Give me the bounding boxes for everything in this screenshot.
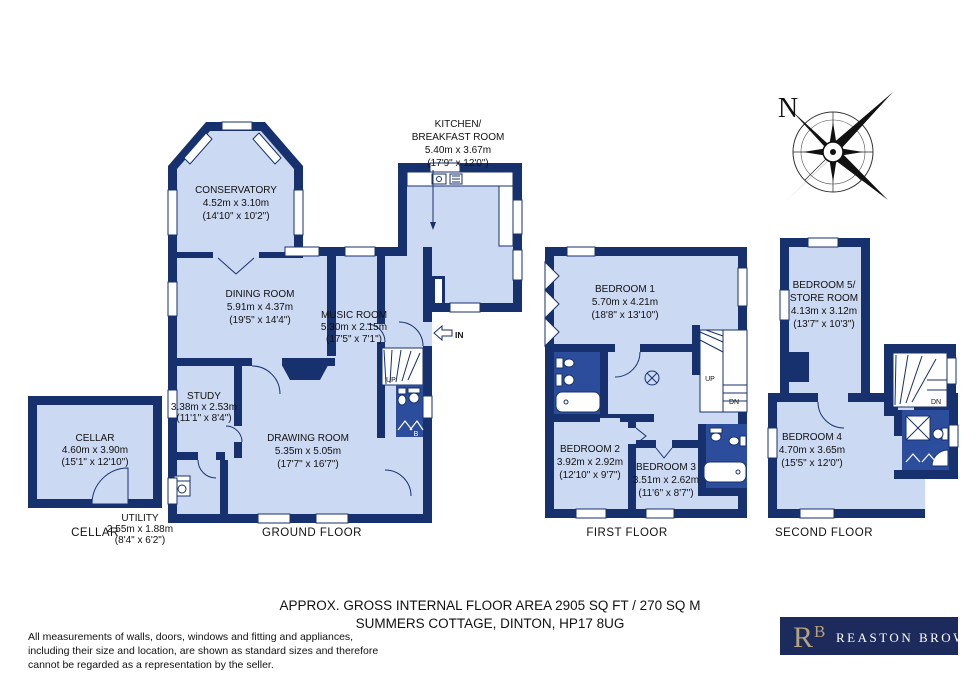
room-size-metric: 3.38m x 2.53m: [171, 402, 237, 413]
shower-room: [894, 410, 949, 470]
sink-icon: [408, 388, 420, 393]
window: [646, 509, 674, 518]
boiler-label: B: [414, 431, 419, 438]
window: [513, 200, 522, 234]
window: [800, 509, 834, 518]
window: [947, 358, 956, 384]
window: [768, 428, 777, 458]
window: [576, 509, 606, 518]
wc-room: B: [396, 385, 423, 438]
agent-logo: R B REASTON BROWN: [780, 617, 980, 655]
window: [567, 247, 595, 256]
stairs-down-label: DN: [729, 399, 739, 406]
room-name: STUDY: [187, 391, 221, 402]
entrance-in-arrow: IN: [434, 326, 464, 340]
room-name: DRAWING ROOM: [267, 433, 349, 444]
room-size-metric: 3.92m x 2.92m: [557, 457, 623, 468]
window: [316, 514, 348, 523]
kitchen-sink-icon: [432, 174, 446, 184]
room-size-imperial: (19'5" x 14'4"): [229, 315, 291, 326]
room-name: BEDROOM 3: [636, 462, 696, 473]
disclaimer-line: All measurements of walls, doors, window…: [28, 631, 353, 643]
window: [738, 268, 747, 306]
room-name: KITCHEN/: [435, 119, 482, 130]
entrance-label: IN: [455, 330, 464, 340]
toilet-icon: [740, 436, 746, 446]
room-size-metric: 5.91m x 4.37m: [227, 302, 293, 313]
room-name: CELLAR: [76, 433, 115, 444]
compass-rose: N: [778, 92, 893, 204]
room-size-imperial: (12'10" x 9'7"): [559, 470, 621, 481]
room-size-imperial: (15'1" x 12'10"): [61, 457, 128, 468]
disclaimer-line: including their size and location, are s…: [28, 645, 378, 657]
window: [222, 122, 252, 130]
room-size-imperial: (17'7" x 16'7"): [277, 459, 339, 470]
property-address: SUMMERS COTTAGE, DINTON, HP17 8UG: [356, 616, 625, 631]
stairs-up-down-icon: UP DN: [700, 330, 747, 412]
room-size-imperial: (14'10" x 10'2"): [202, 211, 269, 222]
stairs-down-label: DN: [931, 399, 941, 406]
room-name: BEDROOM 1: [595, 284, 655, 295]
room-name: BEDROOM 5/: [793, 280, 856, 291]
footer: APPROX. GROSS INTERNAL FLOOR AREA 2905 S…: [28, 598, 700, 671]
window: [949, 425, 958, 447]
room-size-metric: 5.35m x 5.05m: [275, 446, 341, 457]
stairs-up-icon: UP: [382, 348, 423, 385]
window: [294, 190, 303, 235]
room-size-metric: 4.70m x 3.65m: [779, 445, 845, 456]
room-name: BEDROOM 4: [782, 432, 842, 443]
floor-area-text: APPROX. GROSS INTERNAL FLOOR AREA 2905 S…: [280, 598, 701, 613]
sink-icon: [556, 374, 562, 386]
room-name: BEDROOM 2: [560, 444, 620, 455]
window: [808, 238, 838, 247]
sink-icon: [710, 428, 722, 433]
window: [780, 290, 789, 320]
room-size-metric: 3.51m x 2.62m: [633, 475, 699, 486]
room-size-metric: 4.60m x 3.90m: [62, 445, 128, 456]
second-floor-plan: DN BEDROOM 5/ STORE ROOM 4.13m x 3.12m (…: [768, 238, 958, 539]
room-size-imperial: (17'5" x 7'1"): [326, 334, 382, 345]
room-name: UTILITY: [121, 513, 159, 524]
toilet-icon: [398, 388, 406, 394]
room-size-imperial: (11'6" x 8'7"): [638, 488, 693, 499]
room-name: MUSIC ROOM: [321, 310, 387, 321]
first-floor-plan: UP DN BEDROOM 1 5.70m x 4.21m (18'8" x 1…: [545, 247, 747, 539]
room-size-imperial: (18'8" x 13'10"): [591, 310, 658, 321]
room-size-imperial: (13'7" x 10'3"): [793, 319, 855, 330]
room-size-metric: 2.55m x 1.88m: [107, 524, 173, 535]
stairs-up-label: UP: [386, 377, 396, 384]
logo-monogram-b: B: [814, 622, 825, 641]
logo-monogram-r: R: [793, 621, 813, 654]
room-size-metric: 4.13m x 3.12m: [791, 306, 857, 317]
agent-name: REASTON BROWN: [836, 630, 980, 645]
window: [285, 247, 319, 256]
floor-label-first: FIRST FLOOR: [586, 527, 667, 539]
floor-label-second: SECOND FLOOR: [775, 527, 873, 539]
room-size-imperial: (17'9" x 12'0"): [427, 158, 489, 169]
window: [423, 396, 432, 418]
bathroom-1: [554, 352, 600, 414]
window: [513, 250, 522, 280]
room-size-metric: 5.40m x 3.67m: [425, 145, 491, 156]
ground-floor-plan: UP B: [107, 119, 522, 546]
disclaimer-line: cannot be regarded as a representation b…: [28, 659, 274, 671]
room-size-metric: 5.70m x 4.21m: [592, 297, 658, 308]
room-size-metric: 4.52m x 3.10m: [203, 198, 269, 209]
window: [168, 282, 177, 316]
room-name: CONSERVATORY: [195, 185, 277, 196]
floor-label-ground: GROUND FLOOR: [262, 527, 362, 539]
window: [168, 478, 177, 504]
room-name: BREAKFAST ROOM: [412, 132, 505, 143]
floorplan-page: CELLAR 4.60m x 3.90m (15'1" x 12'10") CE…: [0, 0, 980, 692]
room-name: STORE ROOM: [790, 293, 858, 304]
bath-icon: [556, 392, 600, 412]
window: [450, 303, 480, 312]
toilet-icon: [556, 358, 563, 368]
room-size-imperial: (15'5" x 12'0"): [781, 458, 843, 469]
stairs-up-label: UP: [705, 376, 715, 383]
floorplan-svg: CELLAR 4.60m x 3.90m (15'1" x 12'10") CE…: [0, 0, 980, 692]
window: [345, 247, 375, 256]
room-size-imperial: (8'4" x 6'2"): [115, 535, 165, 546]
bathroom-2: [704, 424, 747, 488]
window: [168, 190, 177, 235]
compass-north-label: N: [778, 93, 798, 124]
window: [258, 514, 290, 523]
room-size-imperial: (11'1" x 8'4"): [176, 413, 231, 424]
room-size-metric: 5.30m x 2.15m: [321, 322, 387, 333]
room-name: DINING ROOM: [226, 289, 295, 300]
